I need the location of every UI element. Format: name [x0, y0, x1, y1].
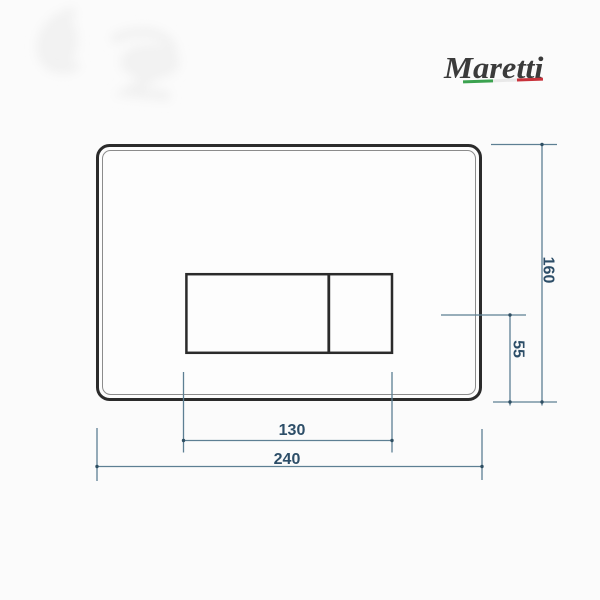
svg-text:160: 160	[540, 257, 557, 284]
svg-text:55: 55	[510, 340, 527, 358]
svg-text:130: 130	[279, 422, 306, 439]
svg-text:240: 240	[274, 451, 301, 468]
